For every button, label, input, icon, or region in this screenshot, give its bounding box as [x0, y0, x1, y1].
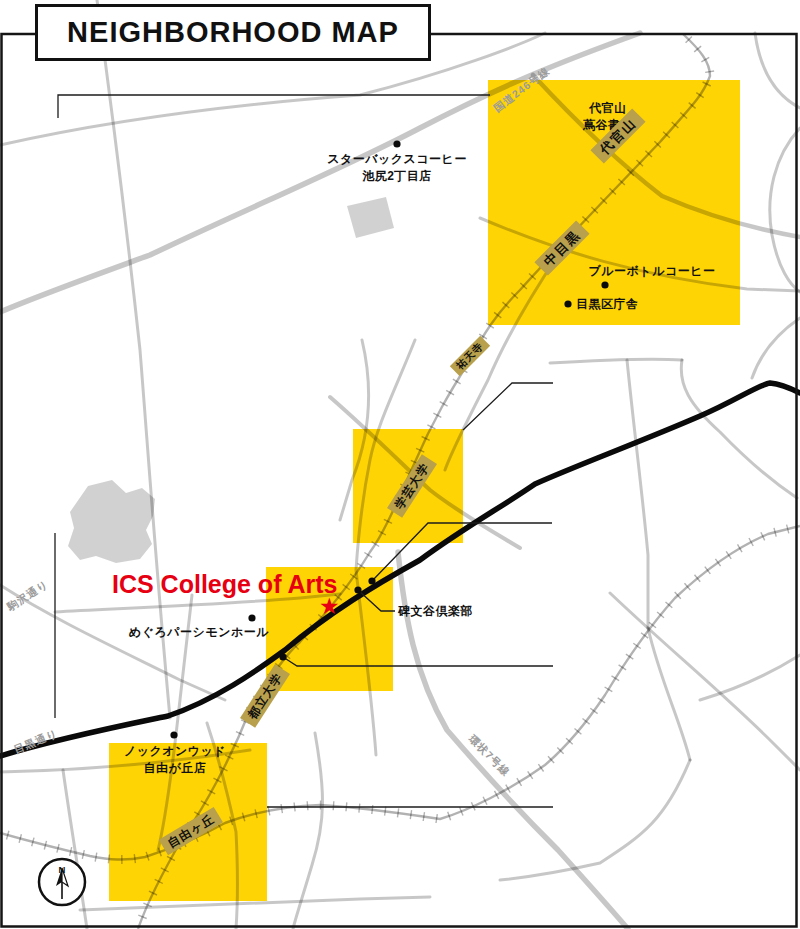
highlight-areas — [109, 80, 740, 901]
railway-tick — [436, 814, 437, 823]
railway-tick — [268, 807, 270, 816]
road-minor — [627, 360, 648, 628]
road-minor — [681, 360, 797, 498]
poi-label-line: 自由が丘店 — [124, 760, 226, 777]
poi-dot-himonya-lower — [279, 653, 286, 660]
map-title: NEIGHBORHOOD MAP — [67, 16, 399, 49]
poi-label-bluebottle: ブルーボトルコーヒー — [589, 263, 716, 280]
road-minor — [700, 655, 800, 700]
poi-label-meguro-ward-office: 目黒区庁舎 — [576, 296, 639, 313]
poi-label-line: めぐろパーシモンホール — [129, 625, 269, 639]
poi-label-line: ノックオンウッド — [124, 743, 226, 760]
railway-tick — [281, 804, 282, 813]
railway-tick — [423, 812, 424, 821]
poi-dot-himonya-upper — [368, 577, 375, 584]
neighborhood-map: N 代官山 蔦谷書店 スターバックスコーヒー 池尻2丁目店 ブルーボトルコーヒー… — [0, 0, 800, 929]
poi-label-himonya-club: 碑文谷倶楽部 — [398, 603, 473, 620]
railway-tick — [705, 71, 714, 72]
poi-label-line: スターバックスコーヒー — [327, 151, 467, 168]
poi-dot-persimmon-hall — [248, 614, 255, 621]
railway-tick — [82, 850, 84, 859]
railway-tick — [108, 855, 109, 864]
railway-tick — [95, 853, 97, 862]
map-title-box: NEIGHBORHOOD MAP — [35, 4, 431, 61]
railway-tick — [398, 808, 399, 817]
railway-tick — [359, 804, 360, 813]
poi-dot-meguro-ward-office — [564, 300, 571, 307]
leader-line-gakugei — [463, 383, 553, 430]
main-poi-star-marker: ★ — [319, 595, 340, 618]
poi-dot-knock-on-wood — [170, 731, 177, 738]
road-minor — [610, 593, 800, 770]
poi-label-line: 目黒区庁舎 — [576, 297, 639, 311]
poi-label-line: 碑文谷倶楽部 — [398, 604, 473, 618]
road-minor — [550, 359, 682, 363]
main-poi-label-ics-college-of-arts: ICS College of Arts — [112, 570, 338, 599]
compass: N — [39, 859, 85, 905]
railway-tick — [410, 810, 411, 819]
poi-dot-starbucks — [393, 140, 400, 147]
poi-dot-himonya-club — [354, 586, 361, 593]
poi-label-starbucks: スターバックスコーヒー 池尻2丁目店 — [327, 151, 467, 185]
poi-label-line: 池尻2丁目店 — [327, 168, 467, 185]
poi-label-persimmon-hall: めぐろパーシモンホール — [129, 624, 269, 641]
poi-dot-bluebottle — [601, 281, 608, 288]
railway-tick — [307, 801, 308, 810]
park-shape — [68, 480, 155, 563]
poi-label-line: ブルーボトルコーヒー — [589, 264, 716, 278]
road-minor — [356, 340, 415, 755]
poi-label-knock-on-wood: ノックオンウッド 自由が丘店 — [124, 743, 226, 777]
road-minor — [752, 318, 800, 378]
railway-tick — [333, 801, 334, 810]
leader-lines — [55, 95, 553, 807]
road-minor — [755, 33, 800, 108]
leader-line-top — [58, 95, 490, 118]
railway-tick — [385, 807, 386, 816]
building-shape — [347, 197, 394, 238]
